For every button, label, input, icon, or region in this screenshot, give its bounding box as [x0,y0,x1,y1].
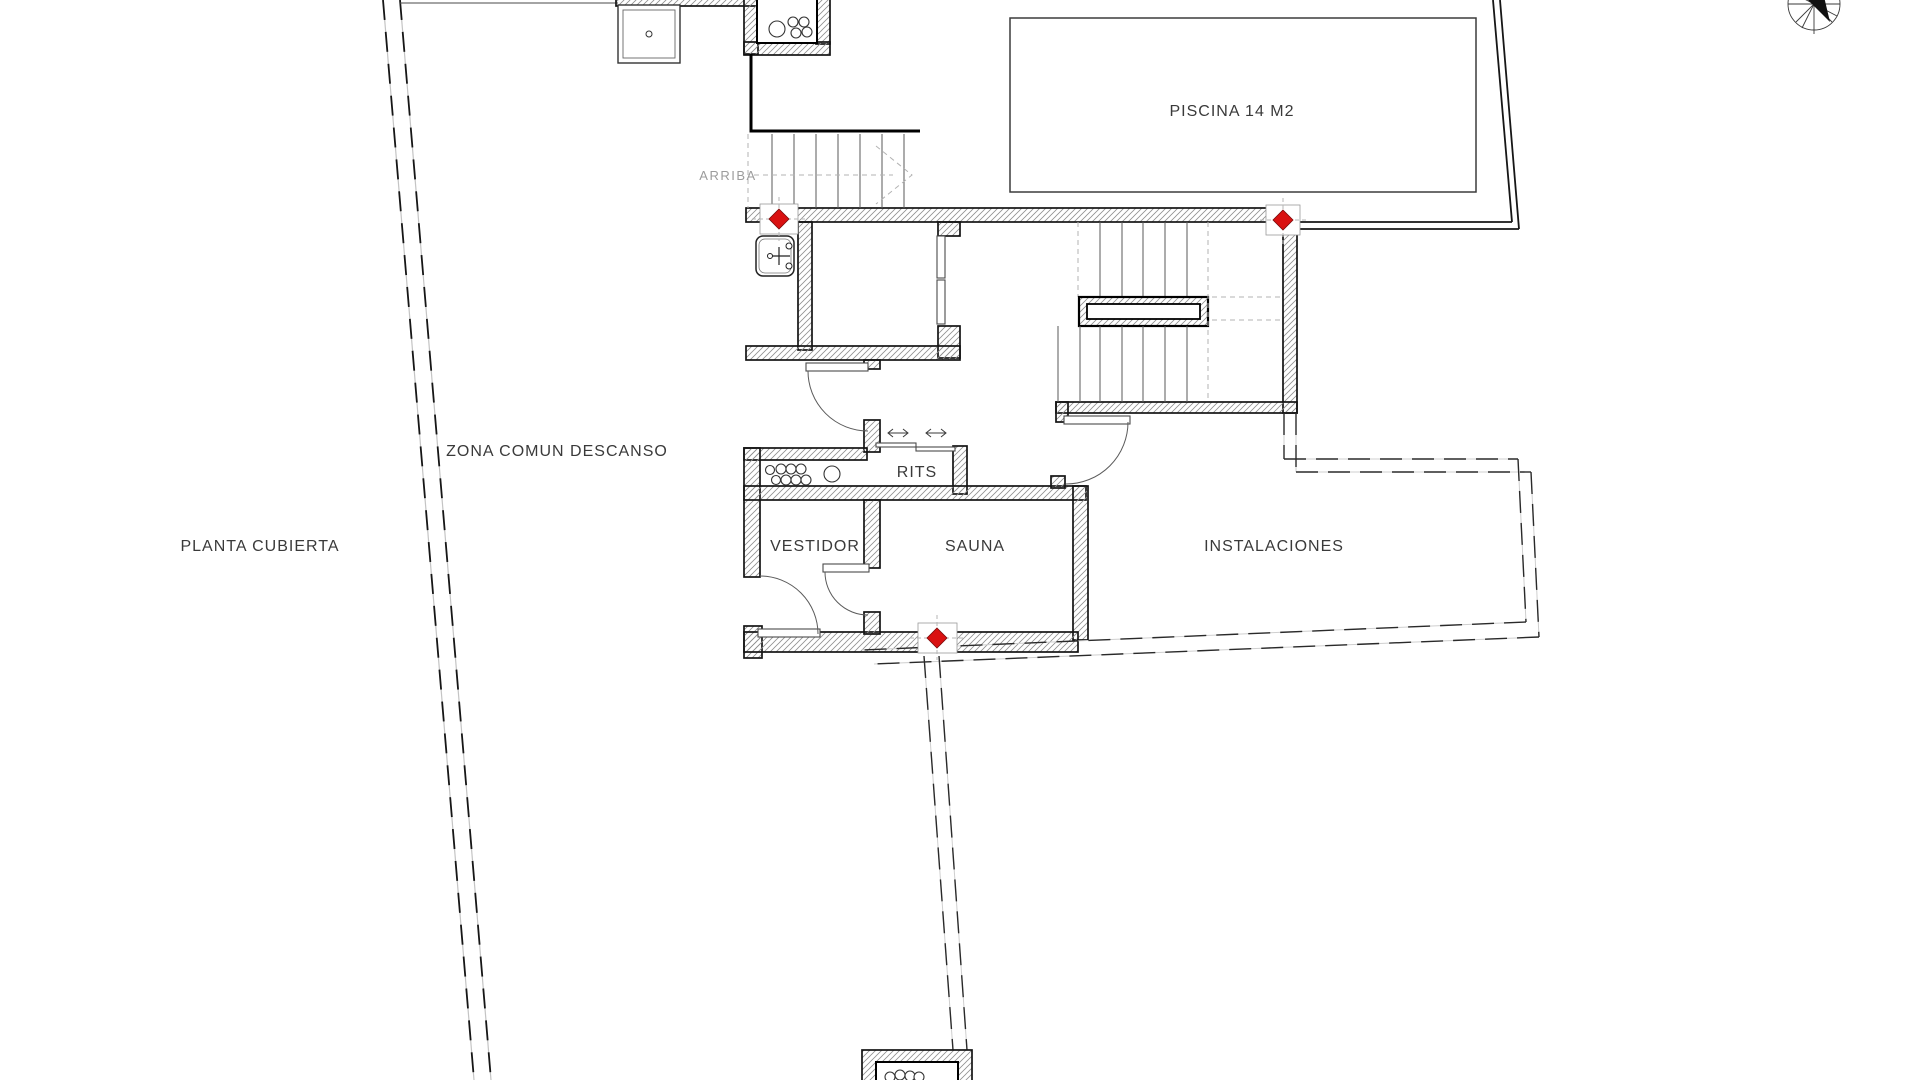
wall-smallroom-right-tab-top [938,222,960,236]
wall-mid-band [744,486,1086,500]
compass-needle [1800,0,1830,22]
stair-landing-beam-inner [1087,304,1200,319]
wall-smallroom-bottom [746,346,960,360]
arriba-label: ARRIBA [699,168,756,183]
planter-top-icon [757,0,817,43]
compass-rose-icon [1788,0,1840,34]
wall-hall-right [1283,234,1297,413]
door-arc-3 [760,576,818,634]
planter-mid-icon [766,464,841,485]
sink-icon [756,236,794,276]
window-panel-top [937,236,945,278]
wall-sauna-right [1073,486,1088,640]
marker-1 [752,197,806,241]
floor-plan-canvas: PISCINA 14 M2 [0,0,1920,1080]
wall-smallroom-left [798,222,812,350]
sliding-panel-left [876,443,916,447]
zona-comun-label: ZONA COMUN DESCANSO [446,443,668,460]
wall-planter2-top [744,448,867,460]
door-leaf-2 [823,564,869,572]
door-leaf-1 [806,363,868,371]
window-panel-bottom [937,280,945,324]
door-arc-2 [825,572,868,615]
sauna-label: SAUNA [945,538,1005,555]
marker-3 [910,615,965,660]
rits-label: RITS [897,464,937,481]
instalaciones-label: INSTALACIONES [1204,538,1344,555]
vestidor-label: VESTIDOR [770,538,860,555]
sliding-panel-right [916,447,955,451]
door-arc-4 [1066,422,1128,484]
planter-bottom-icon [862,1050,972,1080]
pool: PISCINA 14 M2 [1010,18,1476,192]
wall-stairs-bottom [1056,402,1297,413]
markers [752,197,1306,660]
pool-label: PISCINA 14 M2 [1169,103,1294,120]
wall-vestidor-sauna [864,500,880,568]
plan-title-label: PLANTA CUBIERTA [180,538,339,555]
wall-planter-right [816,0,830,44]
wall-vestidor-left [744,448,760,577]
floor-plan-svg: PISCINA 14 M2 [0,0,1920,1080]
sliding-arrows [888,429,946,437]
shower-tray-icon [618,5,680,63]
walkway-path [924,656,967,1050]
floor-edge-line [751,54,920,131]
stairs-main [1058,222,1283,402]
door-arc-1 [808,371,868,431]
door-leaf-3 [758,629,820,637]
door-leaf-4 [1064,416,1130,424]
wall-hall-top [746,208,1272,222]
stairs-upper: ARRIBA [699,134,912,208]
wall-tab-sauna-tr [1051,476,1065,488]
